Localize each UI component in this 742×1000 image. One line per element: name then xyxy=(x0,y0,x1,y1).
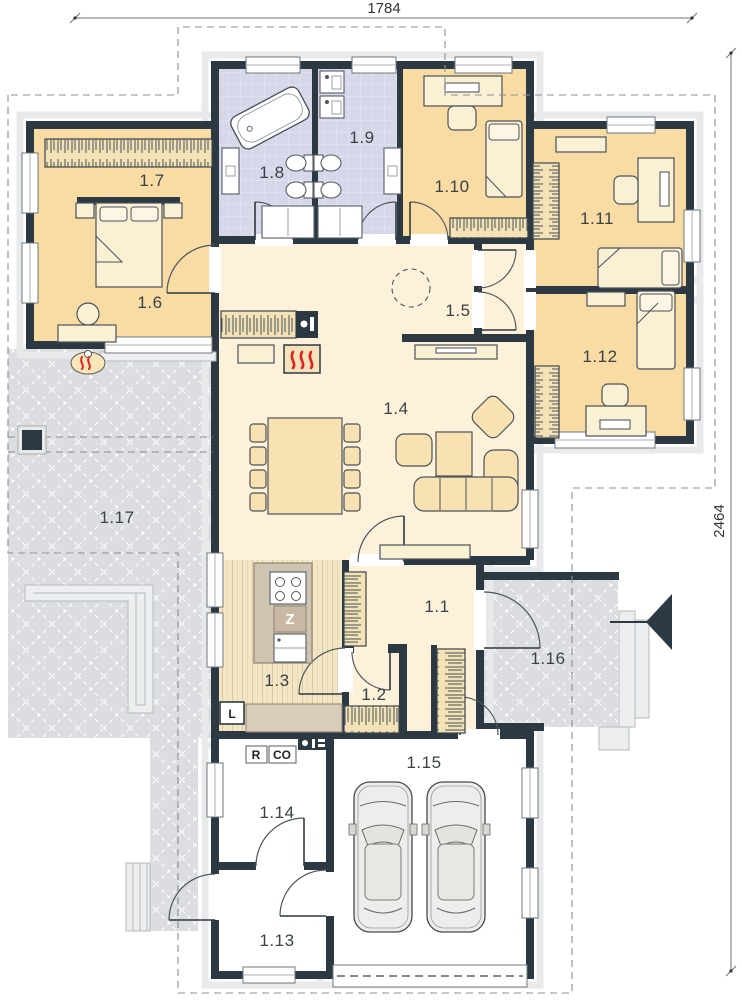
vanity-cabinets xyxy=(262,206,362,238)
washbasin-right xyxy=(384,148,401,194)
tv-wall xyxy=(402,334,530,342)
room-label-1-17: 1.17 xyxy=(99,508,134,527)
boiler-marker: R xyxy=(252,748,261,762)
room-storage-floor xyxy=(215,868,330,975)
floor-plan-page: Z L R CO 1784 2464 xyxy=(0,0,742,1000)
kitchen-counter xyxy=(246,704,342,732)
sink-marker: Z xyxy=(285,611,294,628)
bench xyxy=(238,345,274,363)
room-label-1-7: 1.7 xyxy=(139,171,164,190)
width-dimension-label: 1784 xyxy=(367,0,400,17)
height-dimension-label: 2464 xyxy=(711,504,728,537)
entry-steps-outer xyxy=(619,611,635,727)
room-label-1-10: 1.10 xyxy=(434,177,469,196)
bed-room110 xyxy=(486,121,522,197)
washbasin-left xyxy=(222,148,239,194)
room-label-1-6: 1.6 xyxy=(137,293,162,312)
car-1 xyxy=(349,782,417,932)
room-label-1-15: 1.15 xyxy=(406,753,441,772)
porch-top-wall xyxy=(482,572,619,580)
room-label-1-1: 1.1 xyxy=(424,597,449,616)
shelf-room111 xyxy=(556,137,606,152)
fridge-icon: L xyxy=(220,702,244,724)
floor-plan: Z L R CO 1784 2464 xyxy=(0,0,742,1000)
dimension-height: 2464 xyxy=(711,48,736,976)
room-label-1-4: 1.4 xyxy=(383,399,408,418)
walkway-steps xyxy=(126,863,150,931)
dimension-width: 1784 xyxy=(70,0,697,23)
kitchen-island: Z xyxy=(254,563,312,663)
sideboard-living xyxy=(380,545,470,559)
room-label-1-14: 1.14 xyxy=(259,803,294,822)
entry-steps-inner xyxy=(635,620,649,718)
room-label-1-12: 1.12 xyxy=(582,347,617,366)
room-label-1-5: 1.5 xyxy=(445,301,470,320)
bed-room111 xyxy=(598,248,682,288)
room-label-1-8: 1.8 xyxy=(259,163,284,182)
car-2 xyxy=(422,782,490,932)
porch-side-step xyxy=(599,727,629,750)
heating-marker: CO xyxy=(273,748,291,762)
pergola-post xyxy=(22,430,42,450)
room-label-1-13: 1.13 xyxy=(259,931,294,950)
entrance-arrow-icon xyxy=(646,594,672,650)
room-label-1-16: 1.16 xyxy=(530,649,565,668)
room-label-1-2: 1.2 xyxy=(361,685,386,704)
bed-room112 xyxy=(637,291,675,369)
room-label-1-9: 1.9 xyxy=(349,128,374,147)
stove-icon xyxy=(270,572,306,604)
room-label-1-3: 1.3 xyxy=(264,671,289,690)
room-label-1-11: 1.11 xyxy=(580,209,614,228)
fridge-marker: L xyxy=(228,707,235,721)
fireplace-icon xyxy=(284,345,320,373)
shelf-room112 xyxy=(587,292,625,306)
